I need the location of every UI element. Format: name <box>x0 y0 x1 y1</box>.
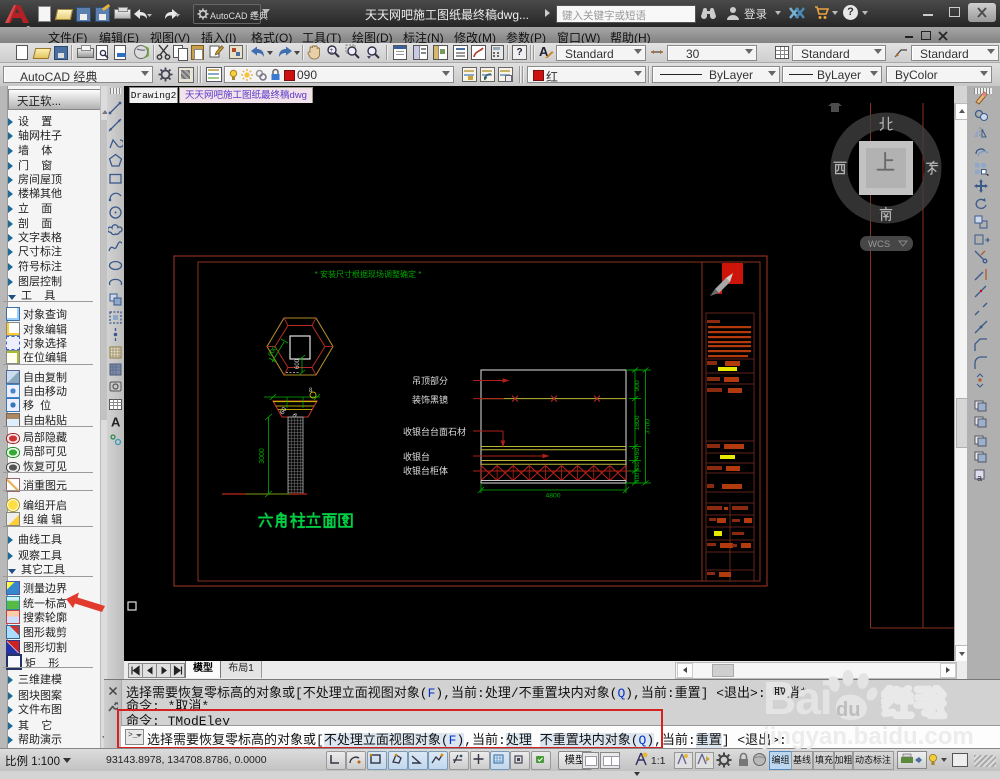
svg-text:900: 900 <box>634 380 641 392</box>
svg-text:收银台: 收银台 <box>403 451 430 462</box>
svg-text:4800: 4800 <box>545 493 560 500</box>
svg-text:收银台柜体: 收银台柜体 <box>403 465 448 476</box>
svg-text:8: 8 <box>309 388 313 394</box>
svg-text:3700: 3700 <box>645 419 652 434</box>
svg-text:±: ± <box>330 48 334 55</box>
svg-text:450: 450 <box>634 448 641 460</box>
svg-text:装饰黑镜: 装饰黑镜 <box>412 394 448 405</box>
svg-text:du: du <box>836 699 860 721</box>
svg-text:* 安装尺寸根据现场调整确定 *: * 安装尺寸根据现场调整确定 * <box>315 269 422 279</box>
svg-text:收银台台面石材: 收银台台面石材 <box>403 426 466 437</box>
svg-text:A: A <box>111 415 121 430</box>
svg-text:a: a <box>977 473 982 483</box>
svg-text:3000: 3000 <box>259 448 266 464</box>
svg-text:吊顶部分: 吊顶部分 <box>412 375 448 386</box>
svg-text:1800: 1800 <box>634 415 641 430</box>
svg-text:WCS: WCS <box>868 239 890 250</box>
svg-text:100: 100 <box>635 473 641 482</box>
svg-text:600: 600 <box>295 358 301 369</box>
svg-text:650: 650 <box>635 461 641 470</box>
